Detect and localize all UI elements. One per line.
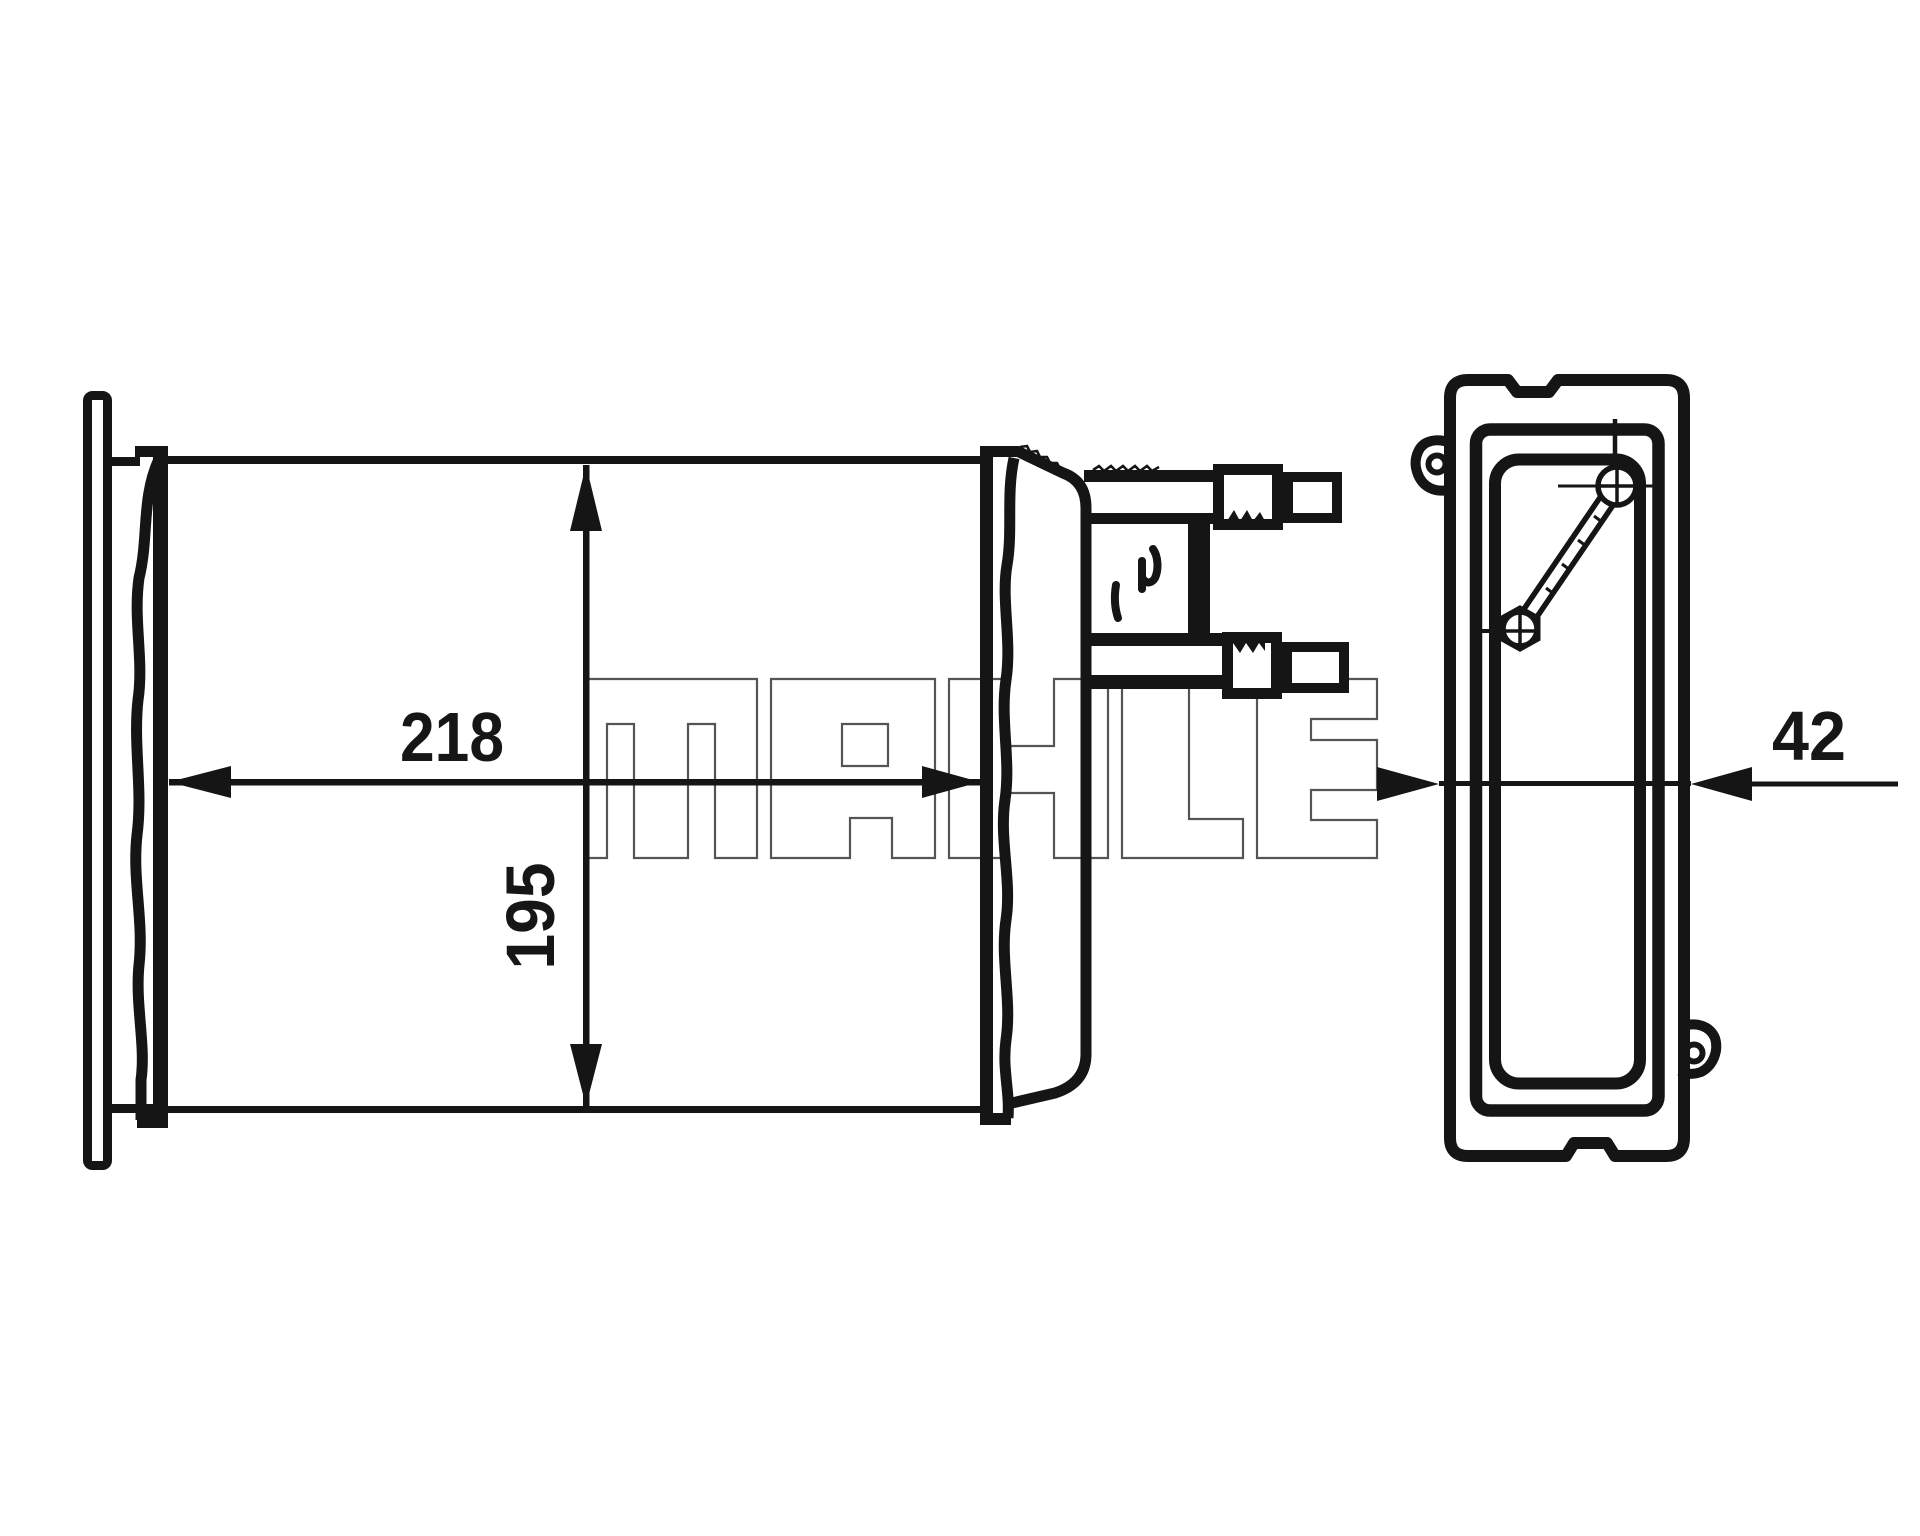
svg-text:42: 42 [1772, 697, 1846, 775]
svg-text:218: 218 [400, 698, 504, 776]
svg-text:195: 195 [492, 863, 569, 970]
